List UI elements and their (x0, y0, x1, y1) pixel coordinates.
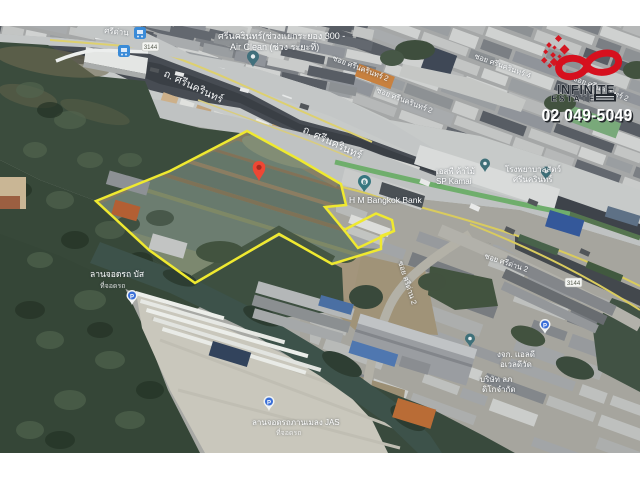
svg-text:ลานจอดรถภานเมลง JAS: ลานจอดรถภานเมลง JAS (252, 418, 340, 427)
svg-text:H M Bangkok Bank: H M Bangkok Bank (349, 195, 423, 205)
svg-text:ลานจอดรถ บัส: ลานจอดรถ บัส (90, 269, 145, 279)
svg-text:บริษัท ลภ: บริษัท ลภ (480, 375, 512, 384)
svg-text:P: P (267, 400, 271, 406)
svg-text:โรงพยาบาลสัตว์: โรงพยาบาลสัตว์ (505, 164, 561, 174)
svg-text:ESTATE: ESTATE (551, 95, 596, 104)
svg-text:เอสพี ค้าไม้: เอสพี ค้าไม้ (436, 167, 475, 176)
svg-text:3144: 3144 (567, 281, 581, 287)
svg-text:ที่จอดรถ: ที่จอดรถ (276, 428, 301, 437)
svg-text:Air Clean (ช่วง ระยะที่): Air Clean (ช่วง ระยะที่) (230, 40, 319, 52)
svg-text:ดิโกจำกัด: ดิโกจำกัด (482, 384, 516, 394)
svg-text:P: P (130, 294, 134, 300)
svg-text:฿: ฿ (363, 179, 367, 186)
svg-text:ศรีนครินทร์: ศรีนครินทร์ (513, 174, 553, 184)
svg-text:02 049-5049: 02 049-5049 (542, 105, 633, 125)
svg-text:SP Kamai: SP Kamai (436, 177, 472, 186)
svg-text:ศรีนครินทร์(ช่วงแยกระยอง 300 -: ศรีนครินทร์(ช่วงแยกระยอง 300 - (218, 30, 345, 41)
svg-text:P: P (543, 323, 547, 329)
svg-text:ที่จอดรถ: ที่จอดรถ (100, 281, 125, 290)
svg-text:งจก. แอลดี: งจก. แอลดี (497, 350, 535, 359)
svg-text:3144: 3144 (144, 45, 158, 51)
svg-text:อเวลดีวัด: อเวลดีวัด (500, 360, 532, 369)
